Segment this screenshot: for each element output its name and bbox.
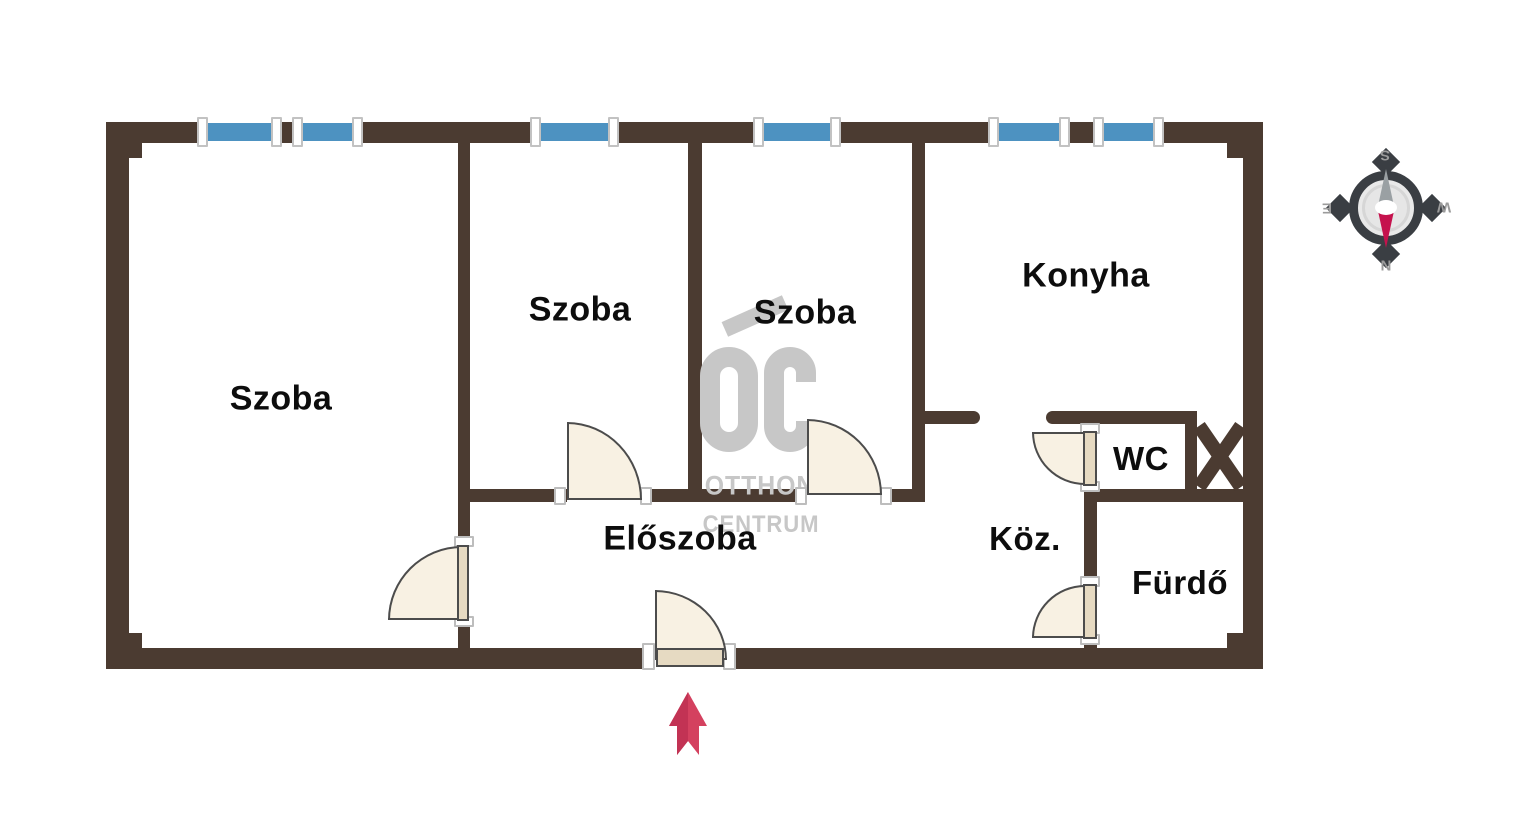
door-jamb (642, 643, 655, 670)
wall-divider (458, 489, 567, 502)
window-cap (608, 117, 619, 147)
wall-top-segment (358, 122, 536, 143)
door-jamb (795, 487, 807, 505)
compass-letter-s: S (1380, 147, 1390, 164)
room-label-wc: WC (1113, 440, 1169, 478)
compass-rose: S N E W (1318, 140, 1458, 280)
room-label-koz: Köz. (989, 520, 1061, 558)
window (205, 123, 279, 141)
wall-stub (1046, 411, 1197, 424)
window-cap (197, 117, 208, 147)
wall-shaft-left (1185, 411, 1197, 502)
wall-top-segment (614, 122, 759, 143)
room-label-furdo: Fürdő (1132, 564, 1228, 602)
compass-letter-e: E (1322, 200, 1332, 217)
door-leaf-wc (1083, 431, 1097, 486)
wall-left (106, 122, 129, 668)
watermark-c-gap (792, 382, 820, 421)
window (1095, 123, 1159, 141)
wall-divider (458, 621, 470, 668)
window-cap (830, 117, 841, 147)
door-arc-szoba-1 (388, 546, 462, 620)
entrance-arrow-icon (669, 692, 707, 755)
room-label-szoba-3: Szoba (754, 294, 857, 333)
wall-corner (106, 122, 142, 158)
door-arc-szoba-2 (567, 422, 642, 500)
door-arc-szoba-3 (807, 419, 882, 495)
door-arc-furdo (1032, 585, 1085, 638)
wall-divider (458, 143, 470, 546)
wall-divider (912, 143, 925, 502)
wall-bottom-segment (106, 648, 645, 669)
window (536, 123, 614, 141)
door-leaf-furdo (1083, 584, 1097, 639)
compass-hub (1375, 200, 1397, 215)
room-label-eloszoba: Előszoba (603, 520, 756, 559)
window-cap (271, 117, 282, 147)
wall-divider (1084, 489, 1263, 502)
wall-bottom-segment (725, 648, 1263, 669)
door-leaf-entrance (656, 648, 724, 667)
window-cap (753, 117, 764, 147)
wall-divider (688, 143, 702, 502)
window-cap (988, 117, 999, 147)
floor-plan: OTTHON CENTRUM Szoba Szoba Szoba Kon (0, 0, 1520, 840)
window-cap (1059, 117, 1070, 147)
window-cap (292, 117, 303, 147)
compass-needle-red (1378, 211, 1394, 248)
window-mullion (1068, 122, 1095, 143)
window-cap (1153, 117, 1164, 147)
wall-stub (925, 411, 980, 424)
window-cap (1093, 117, 1104, 147)
window (995, 123, 1068, 141)
wall-top-segment (836, 122, 995, 143)
room-label-szoba-2: Szoba (529, 291, 632, 330)
compass-letter-n: N (1381, 257, 1392, 274)
wall-corner (106, 633, 142, 669)
shaft-x-icon (1199, 426, 1241, 487)
door-leaf-szoba-1 (457, 545, 469, 621)
door-jamb (554, 487, 566, 505)
room-label-konyha: Konyha (1022, 257, 1150, 296)
wall-right (1243, 122, 1263, 668)
window (759, 123, 836, 141)
watermark-letter-o (700, 347, 758, 452)
window-cap (352, 117, 363, 147)
room-label-szoba-1: Szoba (230, 380, 333, 419)
wall-corner (1227, 633, 1263, 669)
wall-corner (1227, 122, 1263, 158)
window-cap (530, 117, 541, 147)
door-arc-wc (1032, 432, 1085, 485)
compass-letter-w: W (1437, 199, 1451, 216)
